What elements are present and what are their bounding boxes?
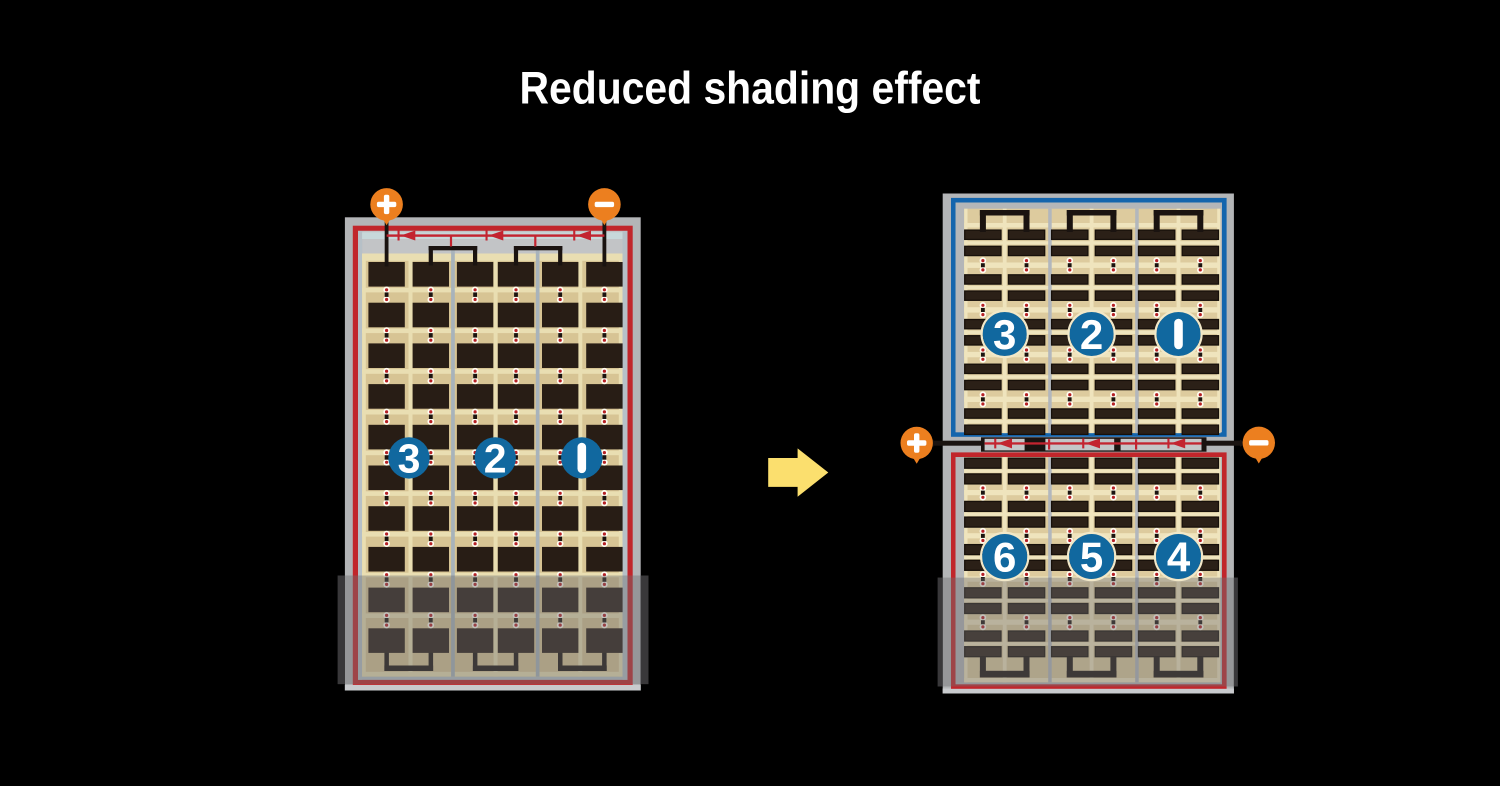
svg-text:3: 3	[993, 311, 1016, 358]
svg-text:2: 2	[484, 436, 507, 482]
svg-text:Reduced shading effect: Reduced shading effect	[520, 63, 981, 114]
svg-text:4: 4	[1167, 534, 1191, 581]
svg-text:3: 3	[398, 436, 421, 482]
svg-text:2: 2	[1080, 311, 1103, 358]
svg-text:6: 6	[993, 534, 1016, 581]
svg-text:5: 5	[1080, 534, 1103, 581]
